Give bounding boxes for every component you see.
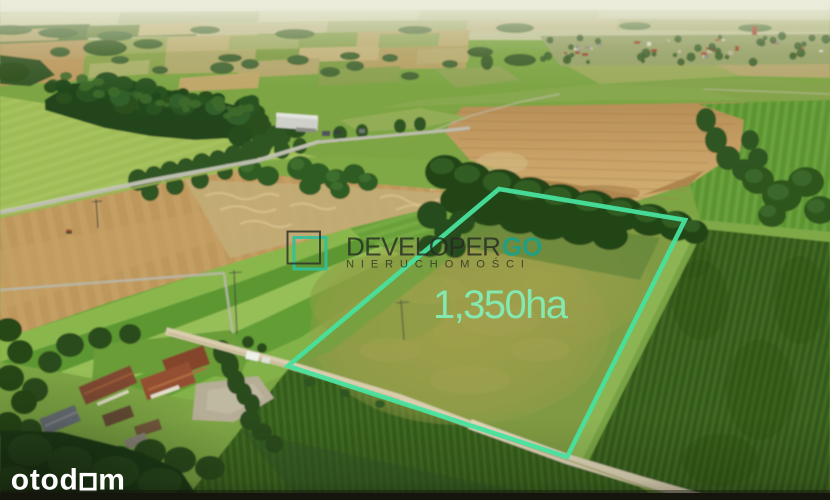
svg-text:NIERUCHOMOŚCI: NIERUCHOMOŚCI	[346, 258, 531, 271]
svg-text:1,350ha: 1,350ha	[433, 283, 569, 327]
svg-text:GO: GO	[502, 232, 542, 262]
svg-text:DEVELOPER: DEVELOPER	[346, 232, 500, 262]
